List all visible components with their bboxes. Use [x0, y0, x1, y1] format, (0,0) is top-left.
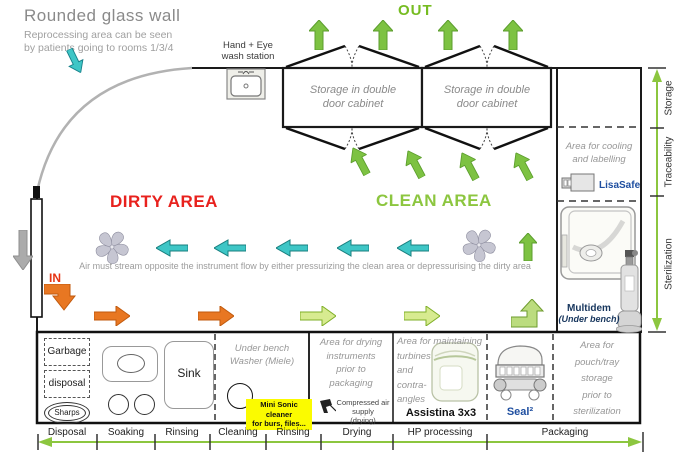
sharps-ellipse-outer: Sharps: [44, 402, 90, 424]
cooling-labelling-area-label: Area for cooling and labelling: [559, 140, 639, 166]
washer-label: Under bench Washer (Miele): [216, 342, 308, 368]
page-title: Rounded glass wall: [24, 6, 180, 26]
corridor-down-arrow-icon: [13, 230, 33, 270]
lisasafe-device-icon: [561, 171, 595, 195]
clean-flow-arrow-icon: [404, 306, 440, 326]
in-elbow-arrow-icon: [44, 284, 76, 311]
axis-stage-hp-processing: HP processing: [400, 427, 480, 438]
multidem-label: Multidem: [556, 303, 622, 314]
assistina-label: Assistina 3x3: [398, 407, 484, 419]
hand-eye-wash-sink-icon: [226, 66, 266, 100]
axis-stage-drying: Drying: [317, 427, 397, 438]
seal-label: Seal²: [488, 406, 552, 418]
airflow-fan-icon: [95, 230, 129, 264]
garbage-box: Garbage: [44, 338, 90, 366]
stage-label-sterilization: Sterilization: [664, 238, 675, 290]
out-arrow-icon: [373, 20, 393, 50]
dirty-flow-arrow-icon: [198, 306, 234, 326]
page-subtitle-2: by patients going to rooms 1/3/4: [24, 42, 173, 55]
soaking-tub-lid: [117, 354, 145, 373]
clean-up-arrow-icon: [519, 233, 537, 261]
seal-device-icon: [492, 343, 548, 401]
clean-flow-arrow-icon: [300, 306, 336, 326]
airflow-left-arrow-icon: [156, 239, 188, 257]
pouch-storage-label: Area for pouch/tray storage prior to ste…: [556, 338, 638, 421]
compressed-air-label: Compressed air supply (drying): [334, 398, 392, 425]
out-arrow-icon: [503, 20, 523, 50]
airflow-left-arrow-icon: [397, 239, 429, 257]
cabinet-1-label: Storage in double door cabinet: [287, 83, 419, 111]
mini-sonic-note: Mini Sonic cleaner for burs, files...: [246, 399, 312, 430]
out-arrow-icon: [309, 20, 329, 50]
clean-area-label: CLEAN AREA: [376, 191, 492, 211]
in-flow-label: IN: [49, 271, 61, 285]
stage-label-storage: Storage: [664, 80, 675, 115]
sink-label: Sink: [165, 366, 213, 380]
airflow-fan-icon: [462, 228, 496, 262]
air-flow-note: Air must stream opposite the instrument …: [40, 261, 570, 271]
airflow-left-arrow-icon: [214, 239, 246, 257]
multidem-sub-label: (Under bench): [552, 314, 626, 324]
to-sterilization-elbow-arrow-icon: [511, 299, 545, 329]
solution-bottle: [134, 394, 155, 415]
cabinet-2-label: Storage in double door cabinet: [424, 83, 550, 111]
stage-label-traceability: Traceability: [664, 137, 675, 188]
axis-stage-packaging: Packaging: [525, 427, 605, 438]
maintaining-area-label: Area for maintaining turbines and contra…: [397, 335, 483, 408]
wall-end-post: [33, 186, 40, 198]
out-flow-label: OUT: [398, 2, 433, 19]
sink-box: Sink: [164, 341, 214, 409]
sharps-label: Sharps: [48, 405, 86, 421]
lisasafe-label: LisaSafe: [599, 180, 640, 191]
curved-glass-wall: [37, 68, 192, 192]
wash-station-label: Hand + Eye wash station: [206, 40, 290, 62]
dirty-area-label: DIRTY AREA: [110, 192, 218, 212]
page-subtitle-1: Reprocessing area can be seen: [24, 29, 172, 42]
out-arrow-icon: [438, 20, 458, 50]
dirty-flow-arrow-icon: [94, 306, 130, 326]
disposal-box: disposal: [44, 370, 90, 398]
drying-area-label: Area for drying instruments prior to pac…: [311, 336, 391, 390]
reprocessing-floorplan: Rounded glass wall Reprocessing area can…: [0, 0, 677, 458]
solution-bottle: [108, 394, 129, 415]
airflow-left-arrow-icon: [337, 239, 369, 257]
airflow-left-arrow-icon: [276, 239, 308, 257]
